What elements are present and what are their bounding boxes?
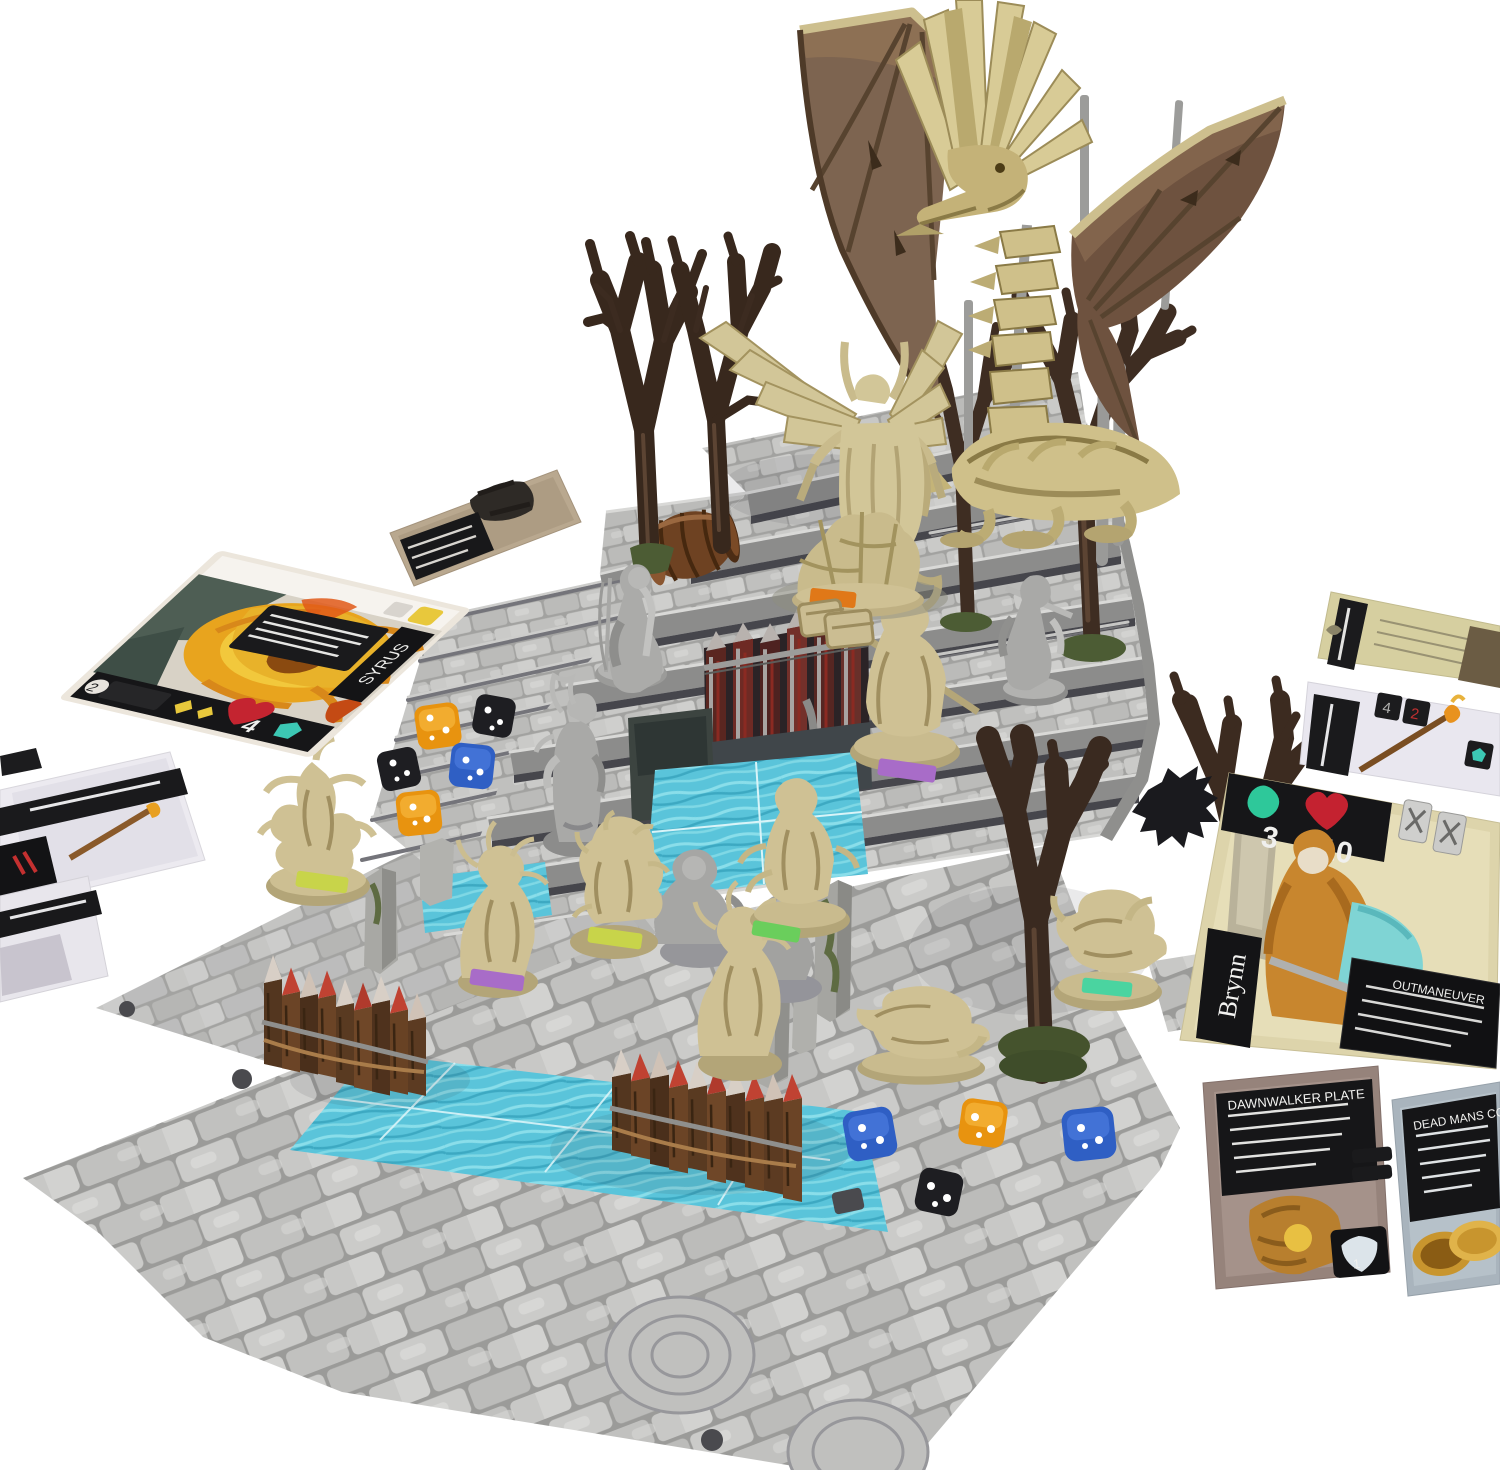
svg-text:1: 1 xyxy=(1352,1256,1361,1272)
